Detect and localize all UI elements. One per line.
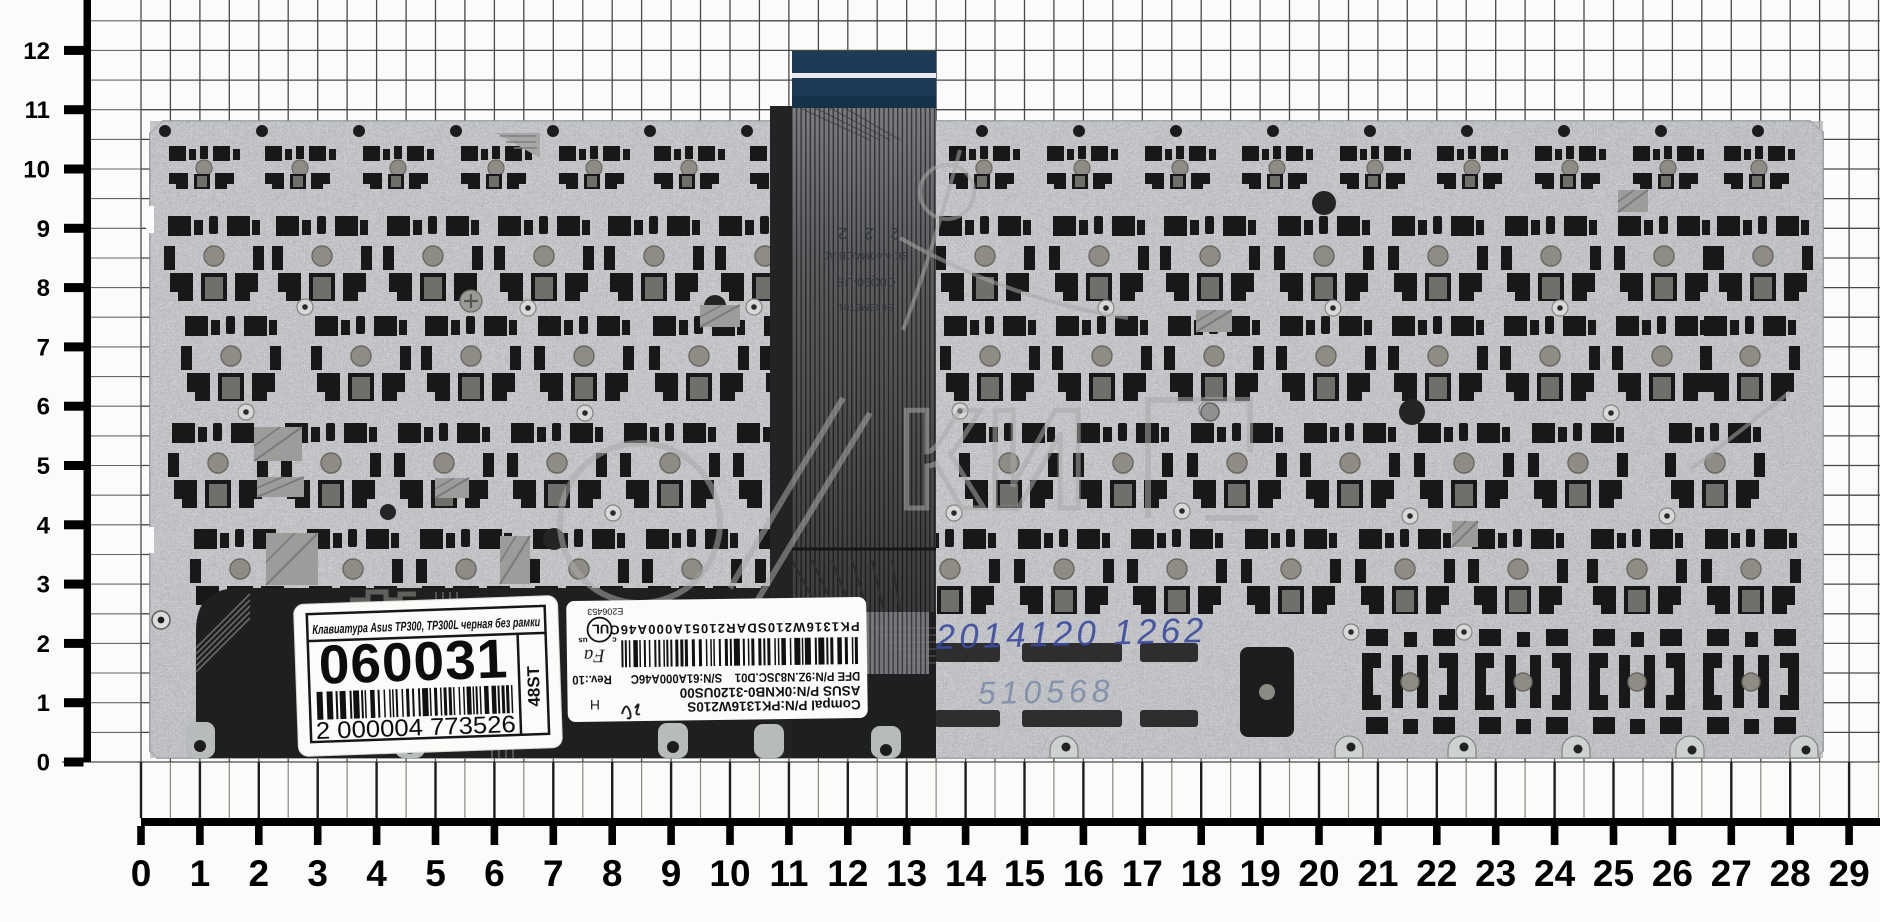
svg-text:КИ: КИ	[897, 380, 1090, 539]
svg-text:0: 0	[37, 750, 50, 777]
svg-text:060031: 060031	[318, 627, 510, 696]
svg-text:5: 5	[37, 453, 50, 480]
svg-text:c: c	[612, 635, 617, 644]
svg-text:9: 9	[37, 216, 50, 243]
svg-text:2 2 2: 2 2 2	[832, 224, 900, 243]
svg-text:C0Q90-US: C0Q90-US	[837, 275, 896, 289]
svg-text:4: 4	[37, 512, 51, 539]
svg-text:19: 19	[1240, 853, 1281, 894]
svg-text:H: H	[590, 697, 600, 713]
svg-text:27: 27	[1711, 853, 1752, 894]
svg-text:3: 3	[37, 572, 50, 599]
svg-text:15: 15	[1004, 853, 1045, 894]
svg-text:0: 0	[131, 853, 152, 894]
svg-text:8: 8	[37, 275, 50, 302]
svg-text:2014120 1262: 2014120 1262	[934, 611, 1208, 657]
svg-text:23: 23	[1475, 853, 1516, 894]
svg-text:510568: 510568	[977, 673, 1114, 711]
svg-text:2: 2	[37, 631, 50, 658]
svg-text:Fa: Fa	[584, 645, 606, 666]
svg-text:25: 25	[1593, 853, 1634, 894]
svg-text:E206453: E206453	[587, 606, 623, 617]
svg-text:7: 7	[37, 334, 50, 361]
svg-text:28: 28	[1770, 853, 1811, 894]
svg-text:6: 6	[37, 394, 50, 421]
svg-text:11: 11	[769, 853, 808, 894]
svg-text:11: 11	[25, 97, 50, 124]
svg-text:16: 16	[1063, 853, 1104, 894]
svg-text:29: 29	[1829, 853, 1870, 894]
svg-text:10: 10	[23, 157, 50, 184]
svg-text:21: 21	[1357, 853, 1398, 894]
svg-text:8: 8	[602, 853, 623, 894]
svg-text:22: 22	[1416, 853, 1457, 894]
svg-text:26: 26	[1652, 853, 1693, 894]
svg-text:2: 2	[249, 853, 270, 894]
svg-text:13: 13	[23, 0, 50, 6]
svg-text:7: 7	[543, 853, 564, 894]
svg-text:us: us	[578, 636, 588, 645]
svg-text:9: 9	[661, 853, 682, 894]
svg-text:UL: UL	[592, 622, 610, 637]
svg-text:3: 3	[307, 853, 328, 894]
svg-text:14: 14	[945, 853, 987, 894]
svg-text:20: 20	[1298, 853, 1339, 894]
svg-text:12: 12	[23, 38, 50, 65]
svg-text:B6 IBM6T01: B6 IBM6T01	[838, 301, 894, 312]
svg-text:6: 6	[484, 853, 505, 894]
svg-text:24: 24	[1534, 853, 1576, 894]
svg-text:SK-N40MACB A0: SK-N40MACB A0	[823, 249, 909, 261]
svg-text:1: 1	[190, 853, 211, 894]
svg-text:18: 18	[1181, 853, 1222, 894]
svg-text:48ST: 48ST	[524, 665, 544, 707]
svg-text:5: 5	[425, 853, 446, 894]
svg-text:12: 12	[827, 853, 868, 894]
svg-text:17: 17	[1122, 853, 1163, 894]
svg-text:4: 4	[366, 853, 387, 894]
svg-text:1: 1	[37, 690, 50, 717]
svg-text:13: 13	[886, 853, 927, 894]
svg-text:10: 10	[709, 853, 750, 894]
